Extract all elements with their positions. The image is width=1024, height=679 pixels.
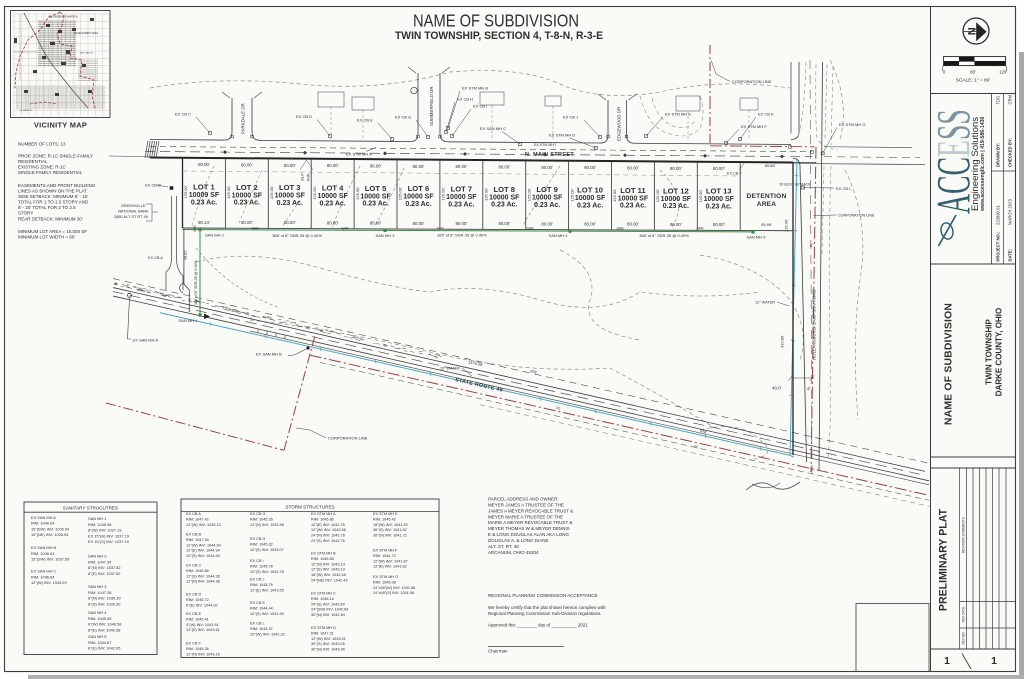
svg-text:RIM: 1045.79: RIM: 1045.79 bbox=[250, 583, 273, 587]
svg-text:12"(W) INV: 1043.51: 12"(W) INV: 1043.51 bbox=[311, 637, 346, 641]
svg-text:125.00': 125.00' bbox=[655, 189, 660, 202]
svg-text:EX 15"(S) INV: 1037.19: EX 15"(S) INV: 1037.19 bbox=[88, 539, 129, 544]
svg-text:EX CB A: EX CB A bbox=[148, 256, 163, 260]
svg-text:15"(SW) INV: 1026.94: 15"(SW) INV: 1026.94 bbox=[31, 526, 70, 531]
svg-text:80.00': 80.00' bbox=[241, 220, 253, 225]
svg-text:0.23 Ac.: 0.23 Ac. bbox=[448, 201, 474, 208]
svg-text:RIM: 1045.32: RIM: 1045.32 bbox=[250, 542, 273, 546]
svg-text:EX SAN MH C: EX SAN MH C bbox=[480, 126, 506, 131]
svg-text:DOUGLAS A. & LONG DIANE: DOUGLAS A. & LONG DIANE bbox=[488, 538, 549, 543]
svg-text:10000 SF: 10000 SF bbox=[275, 193, 306, 200]
svg-text:SAN MH 4: SAN MH 4 bbox=[88, 610, 107, 615]
svg-text:SAN: SAN bbox=[193, 224, 197, 232]
svg-text:12" WATER: 12" WATER bbox=[440, 367, 460, 371]
svg-text:80.00': 80.00' bbox=[627, 222, 639, 227]
svg-text:8"(E) INV: 1040.58: 8"(E) INV: 1040.58 bbox=[88, 627, 120, 632]
svg-text:EX CB D: EX CB D bbox=[186, 593, 201, 597]
svg-text:N. MAIN STREET: N. MAIN STREET bbox=[525, 152, 574, 158]
svg-text:LOT 4: LOT 4 bbox=[322, 184, 344, 193]
svg-text:125.00': 125.00' bbox=[698, 189, 703, 202]
svg-text:LOT 6: LOT 6 bbox=[408, 184, 430, 193]
svg-text:MEYER THOMAS W & MEYER DENNIS: MEYER THOMAS W & MEYER DENNIS bbox=[488, 526, 570, 531]
svg-text:EX SAN MH A: EX SAN MH A bbox=[133, 338, 159, 343]
svg-text:LOT 3: LOT 3 bbox=[279, 183, 301, 192]
svg-text:RIM: 1045.86: RIM: 1045.86 bbox=[311, 517, 334, 521]
svg-text:125.00': 125.00' bbox=[612, 189, 617, 202]
svg-text:EX STM MH F: EX STM MH F bbox=[741, 124, 767, 129]
svg-text:Chairman: Chairman bbox=[488, 648, 508, 653]
svg-text:8"(E) INV: 1037.82: 8"(E) INV: 1037.82 bbox=[88, 571, 120, 576]
svg-text:N: N bbox=[966, 27, 978, 35]
svg-text:24"x48"(S) INV: 1041.56: 24"x48"(S) INV: 1041.56 bbox=[373, 591, 414, 595]
svg-text:12"(S) INV: 1044.94: 12"(S) INV: 1044.94 bbox=[186, 554, 220, 558]
svg-text:12" WATER: 12" WATER bbox=[755, 301, 775, 305]
svg-text:LOT 7: LOT 7 bbox=[451, 185, 473, 194]
svg-text:SANITARY STRUCUTRES: SANITARY STRUCUTRES bbox=[63, 505, 118, 510]
svg-text:NAME OF SUBDIVISION: NAME OF SUBDIVISION bbox=[944, 303, 955, 425]
svg-text:EX SAN MH C: EX SAN MH C bbox=[31, 569, 56, 574]
svg-text:RIM: 1044.44: RIM: 1044.44 bbox=[250, 606, 273, 610]
svg-text:80.00': 80.00' bbox=[327, 220, 339, 225]
svg-text:12"(S) INV: 1043.78: 12"(S) INV: 1043.78 bbox=[250, 570, 284, 574]
svg-text:80.00': 80.00' bbox=[413, 164, 425, 169]
svg-text:ALT. ST. RT. 49: ALT. ST. RT. 49 bbox=[488, 544, 519, 549]
svg-text:80.00': 80.00' bbox=[413, 221, 425, 226]
svg-text:10000 SF: 10000 SF bbox=[317, 193, 348, 200]
svg-text:RIM: 1045.42: RIM: 1045.42 bbox=[373, 517, 396, 521]
svg-text:CORPORATION LINE: CORPORATION LINE bbox=[838, 214, 875, 218]
svg-text:EX CB K: EX CB K bbox=[758, 112, 774, 117]
svg-text:12"(W) INV: 1042.32: 12"(W) INV: 1042.32 bbox=[250, 632, 285, 636]
svg-text:EX SAN MH A: EX SAN MH A bbox=[31, 515, 56, 520]
svg-text:8"(W) INV: 1027.19: 8"(W) INV: 1027.19 bbox=[88, 528, 121, 533]
svg-text:SAN MH 5: SAN MH 5 bbox=[747, 235, 767, 240]
svg-text:8"(S) INV: 1039.30: 8"(S) INV: 1039.30 bbox=[88, 601, 121, 606]
svg-text:0.23 Ac.: 0.23 Ac. bbox=[534, 202, 560, 209]
svg-text:RIM: 1047.31: RIM: 1047.31 bbox=[311, 631, 334, 635]
svg-text:RIM: 1047.54: RIM: 1047.54 bbox=[186, 538, 209, 542]
svg-text:0.23 Ac.: 0.23 Ac. bbox=[234, 200, 260, 207]
svg-text:12"(W) INV: 1045.12: 12"(W) INV: 1045.12 bbox=[186, 523, 221, 527]
svg-text:EX STM MH I: EX STM MH I bbox=[534, 143, 556, 147]
svg-text:RIM: 1045.41: RIM: 1045.41 bbox=[186, 617, 209, 621]
svg-text:223890.01: 223890.01 bbox=[996, 205, 1001, 225]
svg-text:40.0': 40.0' bbox=[772, 386, 782, 391]
svg-text:VICINITY MAP: VICINITY MAP bbox=[34, 121, 87, 130]
svg-text:0.23 Ac.: 0.23 Ac. bbox=[577, 202, 603, 209]
svg-text:SITE VALLEY: SITE VALLEY bbox=[80, 52, 94, 55]
svg-text:8"(W) INV: 1040.58: 8"(W) INV: 1040.58 bbox=[88, 622, 121, 627]
svg-text:RIM: 1046.14: RIM: 1046.14 bbox=[311, 597, 334, 601]
svg-text:6"(E) INV: 1044.92: 6"(E) INV: 1044.92 bbox=[186, 603, 218, 607]
svg-text:SINGLE-FAMILY RESIDENTIAL: SINGLE-FAMILY RESIDENTIAL bbox=[18, 170, 83, 175]
svg-text:12"(W) INV: 1043.36: 12"(W) INV: 1043.36 bbox=[311, 528, 346, 532]
svg-text:MARCH 2023: MARCH 2023 bbox=[1008, 198, 1013, 225]
svg-text:STORM STRUCTURES: STORM STRUCTURES bbox=[285, 505, 334, 510]
svg-text:CORPORATION LINE: CORPORATION LINE bbox=[732, 79, 772, 84]
svg-text:24"(S) INV: 1042.76: 24"(S) INV: 1042.76 bbox=[311, 539, 345, 543]
svg-text:LINES AS SHOWN ON THE PLAT.: LINES AS SHOWN ON THE PLAT. bbox=[18, 189, 88, 194]
svg-text:80.00': 80.00' bbox=[713, 166, 725, 171]
svg-text:0.23 Ac.: 0.23 Ac. bbox=[320, 200, 346, 207]
svg-text:EX CB B: EX CB B bbox=[145, 183, 161, 188]
svg-text:DETENTION: DETENTION bbox=[747, 193, 787, 200]
svg-text:80.00': 80.00' bbox=[627, 165, 639, 170]
svg-text:EX STM MH B: EX STM MH B bbox=[462, 86, 488, 91]
svg-text:SIDE SETBACK: MINIMUM 6' - 15': SIDE SETBACK: MINIMUM 6' - 15' bbox=[18, 194, 88, 199]
svg-text:LOT 5: LOT 5 bbox=[365, 184, 387, 193]
svg-text:PARKDALE DR: PARKDALE DR bbox=[241, 103, 246, 134]
svg-text:EX CB H: EX CB H bbox=[457, 97, 473, 102]
svg-text:SAN: SAN bbox=[617, 227, 625, 231]
svg-text:24"x48"(W) INV: 1041.56: 24"x48"(W) INV: 1041.56 bbox=[373, 586, 415, 590]
svg-text:SAN MH 2: SAN MH 2 bbox=[88, 554, 106, 559]
svg-text:RIM: 1044.47: RIM: 1044.47 bbox=[250, 627, 273, 631]
svg-text:80.00': 80.00' bbox=[541, 221, 553, 226]
svg-text:EX STM MH A: EX STM MH A bbox=[311, 512, 336, 516]
svg-text:80.00': 80.00' bbox=[241, 162, 253, 167]
svg-text:EX CB C: EX CB C bbox=[186, 564, 201, 568]
svg-text:PRELIMINARY PLAT: PRELIMINARY PLAT bbox=[938, 508, 950, 611]
svg-text:33.0': 33.0' bbox=[301, 173, 305, 181]
svg-text:REV NO: REV NO bbox=[962, 632, 966, 645]
svg-text:STORY: STORY bbox=[18, 211, 33, 216]
svg-text:12"(W) INV: 1044.94: 12"(W) INV: 1044.94 bbox=[186, 543, 221, 547]
svg-text:RIM: 1046.64: RIM: 1046.64 bbox=[31, 574, 55, 579]
svg-text:SAN: SAN bbox=[342, 227, 350, 231]
svg-text:MEYER JAMES A TRUSTEE OF THE: MEYER JAMES A TRUSTEE OF THE bbox=[488, 502, 564, 507]
svg-text:0.23 Ac.: 0.23 Ac. bbox=[706, 203, 732, 210]
svg-text:EX CB A: EX CB A bbox=[186, 512, 201, 516]
svg-text:1: 1 bbox=[944, 655, 950, 667]
svg-text:125.00': 125.00' bbox=[312, 186, 317, 199]
svg-text:8"(N) INV: 1039.30: 8"(N) INV: 1039.30 bbox=[88, 596, 121, 601]
svg-text:320' of 8" SDR-35 @ 0.40%: 320' of 8" SDR-35 @ 0.40% bbox=[437, 233, 487, 238]
svg-text:RIM: 1046.86: RIM: 1046.86 bbox=[186, 569, 209, 573]
svg-text:80.00': 80.00' bbox=[670, 166, 682, 171]
svg-text:80.00': 80.00' bbox=[456, 221, 468, 226]
svg-text:SUMMERFIELD DR: SUMMERFIELD DR bbox=[429, 86, 434, 126]
svg-text:EX SAN MH B: EX SAN MH B bbox=[31, 545, 56, 550]
svg-text:EX CB I: EX CB I bbox=[250, 559, 264, 563]
svg-text:RIM: 1044.67: RIM: 1044.67 bbox=[88, 640, 111, 645]
svg-text:RIM: 1045.72: RIM: 1045.72 bbox=[186, 598, 209, 602]
svg-text:MEYER MARIE A TRUSTEE OF THE: MEYER MARIE A TRUSTEE OF THE bbox=[488, 514, 563, 519]
svg-text:125.00': 125.00' bbox=[355, 187, 360, 200]
svg-text:EX STM MH E: EX STM MH E bbox=[665, 112, 691, 117]
svg-text:80.00': 80.00' bbox=[498, 221, 510, 226]
svg-text:80.00': 80.00' bbox=[670, 222, 682, 227]
svg-text:DEVELOPMENT AREA: DEVELOPMENT AREA bbox=[74, 32, 99, 35]
svg-text:RIM: 1045.26: RIM: 1045.26 bbox=[186, 647, 209, 651]
svg-text:RIM: 1047.42: RIM: 1047.42 bbox=[186, 517, 209, 521]
svg-text:LOT 12: LOT 12 bbox=[663, 186, 689, 195]
svg-text:24"(NE) INV: 1042.43: 24"(NE) INV: 1042.43 bbox=[311, 579, 347, 583]
svg-text:PROP. ZONE: R-1C SINGLE-FAMILY: PROP. ZONE: R-1C SINGLE-FAMILY bbox=[18, 154, 93, 159]
svg-text:10000 SF: 10000 SF bbox=[403, 194, 434, 201]
svg-text:10009 SF: 10009 SF bbox=[189, 192, 220, 199]
svg-text:SAN MH 5: SAN MH 5 bbox=[88, 634, 106, 639]
svg-text:36"(N) INV: 1041.72: 36"(N) INV: 1041.72 bbox=[373, 534, 407, 538]
svg-text:Regional Planning Commission S: Regional Planning Commission Sub-Divisio… bbox=[488, 611, 602, 616]
svg-text:RIM: 1045.08: RIM: 1045.08 bbox=[373, 580, 396, 584]
svg-text:2880 ALT ST RT 49: 2880 ALT ST RT 49 bbox=[114, 214, 148, 219]
svg-text:8"(N) INV: 1037.82: 8"(N) INV: 1037.82 bbox=[88, 565, 121, 570]
svg-text:JAMES A MEYER REVOCABLE TRUST: JAMES A MEYER REVOCABLE TRUST & bbox=[488, 508, 573, 513]
svg-text:24"(N) INV: 1042.76: 24"(N) INV: 1042.76 bbox=[311, 534, 345, 538]
svg-text:HOLLANSBURG-SAMPSON ROAD: HOLLANSBURG-SAMPSON ROAD bbox=[812, 289, 817, 360]
svg-text:EX CB D: EX CB D bbox=[296, 114, 312, 119]
svg-text:EASEMENTS AND FRONT BUILDING: EASEMENTS AND FRONT BUILDING bbox=[18, 183, 96, 188]
svg-text:EX CB G: EX CB G bbox=[250, 512, 265, 516]
svg-text:80.00': 80.00' bbox=[498, 164, 510, 169]
svg-text:80.14': 80.14' bbox=[198, 220, 210, 225]
svg-text:EX CB F: EX CB F bbox=[727, 172, 742, 176]
svg-text:CORPORATION LINE: CORPORATION LINE bbox=[328, 436, 368, 441]
svg-text:12"(N) INV: 1043.06: 12"(N) INV: 1043.06 bbox=[250, 523, 284, 527]
svg-text:LOT 2: LOT 2 bbox=[236, 183, 258, 192]
svg-text:125.00': 125.00' bbox=[784, 219, 789, 232]
svg-text:12"(E) INV: 1041.82: 12"(E) INV: 1041.82 bbox=[373, 565, 407, 569]
svg-text:EDGEWOOD DR: EDGEWOOD DR bbox=[617, 107, 622, 141]
svg-text:TDS: TDS bbox=[996, 96, 1001, 105]
svg-text:10000 SF: 10000 SF bbox=[446, 194, 477, 201]
svg-text:E & LONG DOUGLAS ALAN AKA LONG: E & LONG DOUGLAS ALAN AKA LONG bbox=[488, 532, 570, 537]
svg-text:RIM: 1045.26: RIM: 1045.26 bbox=[250, 517, 273, 521]
svg-text:EX SAN MH B: EX SAN MH B bbox=[256, 352, 282, 357]
svg-text:LOT 13: LOT 13 bbox=[706, 187, 732, 196]
svg-text:PL: PL bbox=[807, 386, 811, 390]
svg-text:15"(NE) INV: 1026.94: 15"(NE) INV: 1026.94 bbox=[31, 532, 69, 537]
svg-text:REGIONAL PLANNING COMMISSION A: REGIONAL PLANNING COMMISSION ACCEPTANCE bbox=[488, 593, 598, 598]
svg-text:EX CB L: EX CB L bbox=[836, 186, 852, 191]
svg-text:12"(S) INV: 1043.07: 12"(S) INV: 1043.07 bbox=[250, 548, 284, 552]
svg-text:SAN: SAN bbox=[527, 227, 535, 231]
svg-text:12"(E) INV: 1043.41: 12"(E) INV: 1043.41 bbox=[186, 628, 220, 632]
svg-text:18"(W) INV: 1041.92: 18"(W) INV: 1041.92 bbox=[373, 523, 408, 527]
svg-text:EX CB E: EX CB E bbox=[186, 612, 201, 616]
svg-text:10000 SF: 10000 SF bbox=[489, 194, 520, 201]
svg-text:24"(S) INV: 1042.64: 24"(S) INV: 1042.64 bbox=[311, 602, 345, 606]
svg-text:0.23 Ac.: 0.23 Ac. bbox=[362, 201, 388, 208]
svg-text:4"(W) INV: 1043.91: 4"(W) INV: 1043.91 bbox=[186, 623, 219, 627]
svg-text:30"(N) INV: 1043.06: 30"(N) INV: 1043.06 bbox=[311, 648, 345, 652]
svg-text:0.23 Ac.: 0.23 Ac. bbox=[405, 201, 431, 208]
svg-text:85.68': 85.68' bbox=[765, 163, 776, 168]
svg-text:PROJECT NO.:: PROJECT NO.: bbox=[996, 232, 1001, 262]
svg-text:12"(E) INV: 1044.94: 12"(E) INV: 1044.94 bbox=[186, 549, 220, 553]
svg-text:368' of 8" SDR-35 @ 0.40%: 368' of 8" SDR-35 @ 0.40% bbox=[272, 233, 322, 238]
svg-text:24"(SW) INV: 1042.64: 24"(SW) INV: 1042.64 bbox=[311, 608, 348, 612]
svg-text:RIM: 1049.45: RIM: 1049.45 bbox=[88, 522, 111, 527]
svg-text:12"(S) INV: 1044.36: 12"(S) INV: 1044.36 bbox=[186, 574, 220, 578]
svg-text:80.00': 80.00' bbox=[327, 163, 339, 168]
svg-text:30"(S) INV: 1043.06: 30"(S) INV: 1043.06 bbox=[311, 642, 345, 646]
svg-text:12"(N) INV: 1044.36: 12"(N) INV: 1044.36 bbox=[186, 580, 220, 584]
svg-text:15"(SW) INV: 1037.59: 15"(SW) INV: 1037.59 bbox=[31, 557, 69, 562]
svg-text:16' BLDG SETBACK: 16' BLDG SETBACK bbox=[779, 183, 811, 187]
svg-text:410.86': 410.86' bbox=[780, 335, 785, 348]
svg-text:EX CB F: EX CB F bbox=[186, 642, 201, 646]
svg-text:SAN: SAN bbox=[252, 227, 260, 231]
svg-text:10000 SF: 10000 SF bbox=[704, 196, 735, 203]
svg-text:10000 SF: 10000 SF bbox=[360, 193, 391, 200]
svg-text:AREA: AREA bbox=[757, 201, 777, 208]
svg-text:PARCEL ADDRESS AND OWNER:: PARCEL ADDRESS AND OWNER: bbox=[488, 496, 559, 501]
svg-text:EX STM MH G: EX STM MH G bbox=[373, 575, 398, 579]
svg-text:125.00': 125.00' bbox=[398, 187, 403, 200]
svg-text:REV DATE: REV DATE bbox=[962, 607, 966, 623]
svg-text:80.00': 80.00' bbox=[198, 162, 210, 167]
svg-text:LOT 9: LOT 9 bbox=[536, 185, 558, 194]
svg-text:0.23 Ac.: 0.23 Ac. bbox=[491, 202, 517, 209]
svg-text:Approved this ________ day of: Approved this ________ day of __________… bbox=[488, 622, 588, 627]
svg-text:ARCANUM, OHIO 45304: ARCANUM, OHIO 45304 bbox=[488, 550, 539, 555]
svg-text:EX STM MH F: EX STM MH F bbox=[373, 549, 398, 553]
svg-text:CRM: CRM bbox=[1008, 94, 1013, 104]
svg-text:10000 SF: 10000 SF bbox=[232, 192, 263, 199]
svg-text:DRAWN BY:: DRAWN BY: bbox=[996, 143, 1001, 167]
svg-text:80.00': 80.00' bbox=[584, 222, 596, 227]
svg-text:EX STM MH A: EX STM MH A bbox=[346, 151, 372, 156]
svg-text:36"(S) INV: 1041.82: 36"(S) INV: 1041.82 bbox=[373, 528, 407, 532]
svg-text:GREENVILLE: GREENVILLE bbox=[121, 203, 146, 208]
svg-text:80.00': 80.00' bbox=[713, 222, 725, 227]
svg-text:PL: PL bbox=[810, 243, 814, 247]
svg-text:TOTAL FOR 1 TO 1.5 STORY AND: TOTAL FOR 1 TO 1.5 STORY AND bbox=[18, 200, 89, 205]
svg-text:125.00': 125.00' bbox=[269, 186, 274, 199]
svg-text:80.00': 80.00' bbox=[370, 163, 382, 168]
svg-text:0.23 Ac.: 0.23 Ac. bbox=[277, 200, 303, 207]
svg-text:EX CB B: EX CB B bbox=[186, 533, 201, 537]
svg-text:125.00': 125.00' bbox=[183, 185, 188, 198]
svg-text:12"(S) INV: 1041.99: 12"(S) INV: 1041.99 bbox=[250, 612, 284, 616]
svg-text:NATIONAL BANK: NATIONAL BANK bbox=[118, 209, 149, 214]
svg-text:LOT 1: LOT 1 bbox=[193, 182, 215, 191]
svg-text:8' - 20' TOTAL FOR 2 TO 2.5: 8' - 20' TOTAL FOR 2 TO 2.5 bbox=[18, 205, 76, 210]
svg-text:125.00': 125.00' bbox=[569, 188, 574, 201]
svg-text:0.23 Ac.: 0.23 Ac. bbox=[191, 199, 217, 206]
svg-text:125.00': 125.00' bbox=[526, 188, 531, 201]
svg-text:EX STM MH G: EX STM MH G bbox=[839, 122, 865, 127]
svg-text:EX CB G: EX CB G bbox=[395, 115, 411, 120]
svg-text:80.00': 80.00' bbox=[284, 163, 296, 168]
svg-text:125.00': 125.00' bbox=[441, 187, 446, 200]
svg-text:EX CB H: EX CB H bbox=[250, 537, 265, 541]
svg-text:12"(S) INV: 1043.13: 12"(S) INV: 1043.13 bbox=[311, 568, 345, 572]
svg-text:MINIMUM LOT WIDTH = 80': MINIMUM LOT WIDTH = 80' bbox=[18, 235, 75, 240]
svg-text:0.23 Ac.: 0.23 Ac. bbox=[663, 203, 689, 210]
svg-text:RIM: 1049.04: RIM: 1049.04 bbox=[31, 551, 55, 556]
svg-text:RIM: 1045.98: RIM: 1045.98 bbox=[88, 616, 111, 621]
svg-text:MARIE A MEYER REVOCABLE TRUST: MARIE A MEYER REVOCABLE TRUST & bbox=[488, 520, 572, 525]
svg-text:NUMBER OF LOTS: 13: NUMBER OF LOTS: 13 bbox=[18, 142, 66, 147]
svg-text:MINIMUM LOT AREA = 10,000 SF: MINIMUM LOT AREA = 10,000 SF bbox=[18, 229, 87, 234]
svg-text:EX CB J: EX CB J bbox=[250, 578, 264, 582]
svg-text:RIM: 1049.64: RIM: 1049.64 bbox=[31, 521, 55, 526]
svg-text:EX STM MH D: EX STM MH D bbox=[311, 626, 336, 630]
svg-text:156' of 8" SDR-35 @ 0.40%: 156' of 8" SDR-35 @ 0.40% bbox=[194, 260, 198, 305]
svg-text:125.00': 125.00' bbox=[226, 186, 231, 199]
svg-text:EX CB E: EX CB E bbox=[357, 118, 373, 123]
svg-text:SAN: SAN bbox=[437, 227, 445, 231]
svg-text:12"(E) INV: 1042.76: 12"(E) INV: 1042.76 bbox=[311, 523, 345, 527]
svg-text:NAME OF SUBDIVISION: NAME OF SUBDIVISION bbox=[413, 11, 579, 31]
svg-text:R/W: R/W bbox=[307, 173, 311, 181]
svg-text:HOLLANSBURG-SAMPSON: HOLLANSBURG-SAMPSON bbox=[48, 16, 78, 19]
svg-text:80.00': 80.00' bbox=[284, 220, 296, 225]
svg-text:EX CB L: EX CB L bbox=[250, 622, 265, 626]
svg-text:SCALE: 1" = 80': SCALE: 1" = 80' bbox=[956, 77, 991, 83]
svg-text:EXISTING ZONE: R-1C: EXISTING ZONE: R-1C bbox=[18, 165, 67, 170]
svg-text:LOT 10: LOT 10 bbox=[577, 186, 603, 195]
svg-text:REVISION COMMENTS: REVISION COMMENTS bbox=[962, 516, 966, 553]
svg-text:TWIN TOWNSHIP: TWIN TOWNSHIP bbox=[985, 319, 994, 385]
svg-text:DATE:: DATE: bbox=[1008, 249, 1013, 261]
svg-text:SAN: SAN bbox=[697, 227, 705, 231]
svg-text:EX CB C: EX CB C bbox=[175, 112, 191, 117]
svg-text:LOT 8: LOT 8 bbox=[493, 185, 515, 194]
svg-text:EX CB K: EX CB K bbox=[250, 601, 265, 605]
svg-text:TWIN TOWNSHIP, SECTION 4, T-8-: TWIN TOWNSHIP, SECTION 4, T-8-N, R-3-E bbox=[395, 30, 603, 42]
svg-text:We hereby certify that the pla: We hereby certify that the plat shown he… bbox=[488, 605, 606, 610]
svg-text:18"(W) INV: 1042.48: 18"(W) INV: 1042.48 bbox=[311, 573, 346, 577]
svg-text:DARKE COUNTY, OHIO: DARKE COUNTY, OHIO bbox=[995, 308, 1004, 396]
svg-text:W. MAIN ST: W. MAIN ST bbox=[20, 109, 33, 112]
svg-text:SAN MH 3: SAN MH 3 bbox=[88, 584, 106, 589]
svg-text:80.00': 80.00' bbox=[584, 165, 596, 170]
svg-text:CHECKED BY:: CHECKED BY: bbox=[1008, 138, 1013, 167]
svg-text:EX 15"(N) INV: 1037.19: EX 15"(N) INV: 1037.19 bbox=[88, 533, 129, 538]
svg-text:SAN MH 3: SAN MH 3 bbox=[376, 233, 396, 238]
svg-text:SAN MH 2: SAN MH 2 bbox=[205, 233, 225, 238]
svg-text:RIM: 1044.72: RIM: 1044.72 bbox=[373, 554, 396, 558]
svg-text:10000 SF: 10000 SF bbox=[661, 196, 692, 203]
svg-text:REAR SETBACK: MINIMUM 30': REAR SETBACK: MINIMUM 30' bbox=[18, 217, 83, 222]
svg-text:1: 1 bbox=[991, 655, 997, 667]
svg-text:12"(W) INV: 1041.87: 12"(W) INV: 1041.87 bbox=[373, 559, 408, 563]
svg-text:30"(N) INV: 1042.64: 30"(N) INV: 1042.64 bbox=[311, 613, 345, 617]
svg-text:www.accessengllc.com | 419-586: www.accessengllc.com | 419-586-1430 bbox=[980, 116, 986, 212]
svg-text:EX STM MH C: EX STM MH C bbox=[311, 592, 336, 596]
svg-text:RIM: 1047.34: RIM: 1047.34 bbox=[88, 559, 112, 564]
svg-text:SAN MH 4: SAN MH 4 bbox=[549, 233, 569, 238]
svg-text:12"(N) INV: 1043.16: 12"(N) INV: 1043.16 bbox=[186, 652, 220, 656]
svg-text:EX CB J: EX CB J bbox=[563, 115, 578, 120]
svg-text:LOT 11: LOT 11 bbox=[620, 186, 646, 195]
svg-text:RIM: 1047.28: RIM: 1047.28 bbox=[88, 590, 111, 595]
svg-text:8"(E) INV: 1042.05: 8"(E) INV: 1042.05 bbox=[88, 646, 120, 651]
svg-text:125.00': 125.00' bbox=[484, 188, 489, 201]
svg-text:80.00': 80.00' bbox=[370, 221, 382, 226]
svg-text:12"(W) INV: 1043.29: 12"(W) INV: 1043.29 bbox=[31, 580, 67, 585]
svg-text:120': 120' bbox=[999, 70, 1007, 75]
svg-text:10000 SF: 10000 SF bbox=[575, 195, 606, 202]
svg-text:368' of 8" SDR-35 @ 0.40%: 368' of 8" SDR-35 @ 0.40% bbox=[639, 233, 689, 238]
svg-text:RESIDENTIAL: RESIDENTIAL bbox=[18, 159, 48, 164]
svg-text:12"(E) INV: 1043.55: 12"(E) INV: 1043.55 bbox=[250, 588, 284, 592]
svg-text:80.00': 80.00' bbox=[456, 164, 468, 169]
svg-text:EX STM MH B: EX STM MH B bbox=[311, 552, 336, 556]
svg-text:80.00': 80.00' bbox=[541, 165, 553, 170]
svg-text:95.99': 95.99' bbox=[761, 222, 772, 227]
svg-text:SAN MH 1: SAN MH 1 bbox=[179, 318, 199, 323]
svg-text:12"(N) INV: 1043.13: 12"(N) INV: 1043.13 bbox=[311, 562, 345, 566]
svg-text:RIM: 1045.83: RIM: 1045.83 bbox=[311, 557, 334, 561]
svg-text:10000 SF: 10000 SF bbox=[618, 195, 649, 202]
svg-text:EX STM MH E: EX STM MH E bbox=[373, 512, 398, 516]
svg-text:RIM: 1045.78: RIM: 1045.78 bbox=[250, 564, 273, 568]
